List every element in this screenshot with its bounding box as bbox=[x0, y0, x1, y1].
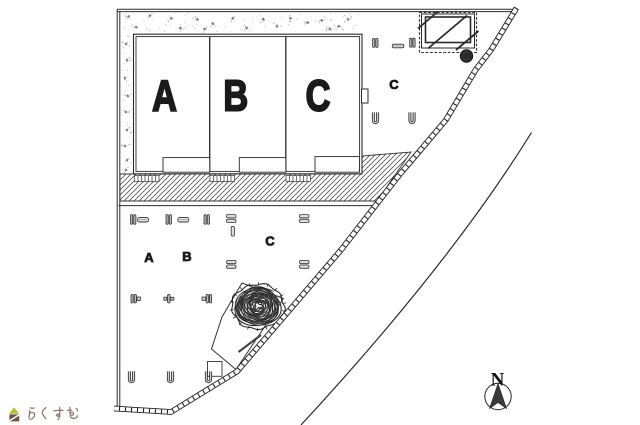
svg-text:A: A bbox=[144, 250, 154, 265]
svg-text:C: C bbox=[389, 77, 399, 92]
svg-text:A: A bbox=[152, 71, 177, 120]
svg-text:N: N bbox=[491, 370, 505, 391]
svg-text:B: B bbox=[223, 71, 248, 120]
svg-text:C: C bbox=[306, 71, 331, 120]
svg-text:C: C bbox=[265, 234, 275, 249]
svg-text:B: B bbox=[182, 249, 191, 264]
